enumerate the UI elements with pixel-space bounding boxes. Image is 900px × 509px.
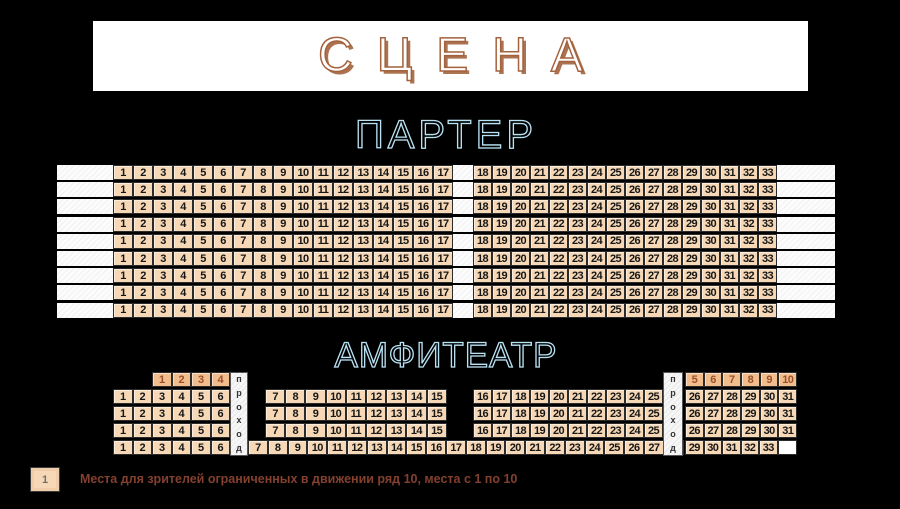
seat[interactable]: 20 (511, 251, 530, 266)
seat[interactable]: 3 (153, 251, 173, 266)
seat[interactable]: 30 (760, 406, 779, 421)
seat[interactable]: 26 (685, 389, 704, 404)
accessible-seat[interactable]: 3 (191, 372, 211, 387)
seat[interactable]: 3 (152, 406, 172, 421)
seat[interactable]: 24 (587, 251, 606, 266)
seat[interactable]: 7 (233, 234, 253, 249)
seat[interactable]: 26 (625, 234, 644, 249)
seat[interactable]: 31 (720, 234, 739, 249)
seat[interactable]: 4 (173, 165, 193, 180)
accessible-seat[interactable]: 1 (152, 372, 172, 387)
seat[interactable]: 24 (585, 440, 605, 455)
seat[interactable]: 5 (193, 285, 213, 300)
seat[interactable]: 17 (433, 285, 453, 300)
seat[interactable]: 22 (587, 406, 606, 421)
seat[interactable]: 15 (393, 268, 413, 283)
accessible-seat[interactable]: 6 (704, 372, 723, 387)
seat[interactable]: 4 (173, 182, 193, 197)
seat[interactable]: 24 (625, 389, 644, 404)
seat[interactable]: 30 (760, 389, 779, 404)
seat[interactable]: 18 (473, 251, 492, 266)
seat[interactable]: 13 (353, 234, 373, 249)
seat[interactable]: 9 (273, 165, 293, 180)
seat[interactable]: 32 (741, 440, 760, 455)
seat[interactable]: 26 (625, 303, 644, 318)
seat[interactable]: 32 (739, 234, 758, 249)
seat[interactable]: 26 (625, 268, 644, 283)
seat[interactable]: 1 (113, 423, 133, 438)
seat[interactable]: 1 (113, 268, 133, 283)
seat[interactable]: 17 (433, 303, 453, 318)
seat[interactable]: 6 (213, 234, 233, 249)
seat[interactable]: 5 (191, 389, 211, 404)
seat[interactable]: 10 (293, 182, 313, 197)
seat[interactable]: 20 (511, 217, 530, 232)
seat[interactable]: 10 (307, 440, 327, 455)
seat[interactable]: 15 (393, 217, 413, 232)
seat[interactable]: 14 (373, 165, 393, 180)
seat[interactable]: 25 (644, 423, 663, 438)
seat[interactable]: 22 (549, 234, 568, 249)
seat[interactable]: 13 (353, 182, 373, 197)
seat[interactable]: 33 (758, 182, 777, 197)
seat[interactable]: 2 (133, 285, 153, 300)
seat[interactable]: 7 (233, 285, 253, 300)
seat[interactable]: 30 (701, 285, 720, 300)
seat[interactable]: 19 (492, 199, 511, 214)
seat[interactable]: 18 (473, 234, 492, 249)
seat[interactable]: 10 (326, 423, 346, 438)
seat[interactable]: 25 (606, 182, 625, 197)
seat[interactable]: 22 (549, 165, 568, 180)
seat[interactable]: 8 (253, 199, 273, 214)
seat[interactable]: 31 (778, 406, 797, 421)
seat[interactable]: 8 (253, 251, 273, 266)
seat[interactable]: 18 (473, 268, 492, 283)
seat[interactable]: 16 (413, 303, 433, 318)
seat[interactable]: 20 (505, 440, 525, 455)
seat[interactable]: 33 (758, 234, 777, 249)
seat[interactable]: 16 (473, 423, 492, 438)
seat[interactable]: 13 (353, 251, 373, 266)
seat[interactable]: 23 (606, 389, 625, 404)
seat[interactable]: 20 (511, 182, 530, 197)
seat[interactable]: 7 (233, 199, 253, 214)
seat[interactable]: 33 (758, 285, 777, 300)
seat[interactable]: 26 (624, 440, 644, 455)
seat[interactable]: 9 (273, 217, 293, 232)
seat[interactable]: 3 (153, 285, 173, 300)
seat[interactable]: 27 (704, 406, 723, 421)
seat[interactable]: 18 (511, 406, 530, 421)
seat[interactable]: 29 (682, 234, 701, 249)
seat[interactable]: 22 (549, 217, 568, 232)
seat[interactable]: 18 (511, 389, 530, 404)
seat[interactable]: 29 (685, 440, 704, 455)
seat[interactable]: 25 (606, 285, 625, 300)
seat[interactable]: 1 (113, 234, 133, 249)
seat[interactable]: 12 (366, 423, 386, 438)
seat[interactable]: 27 (644, 268, 663, 283)
seat[interactable]: 27 (644, 165, 663, 180)
seat[interactable]: 24 (587, 268, 606, 283)
seat[interactable]: 16 (413, 234, 433, 249)
seat[interactable]: 27 (644, 440, 664, 455)
seat[interactable]: 17 (492, 423, 511, 438)
seat[interactable]: 9 (273, 285, 293, 300)
seat[interactable]: 2 (133, 440, 153, 455)
seat[interactable]: 31 (778, 423, 797, 438)
seat[interactable]: 20 (511, 268, 530, 283)
seat[interactable]: 20 (549, 406, 568, 421)
seat[interactable]: 7 (248, 440, 268, 455)
seat[interactable]: 30 (701, 268, 720, 283)
seat[interactable]: 9 (305, 406, 325, 421)
seat[interactable]: 31 (720, 217, 739, 232)
seat[interactable]: 14 (373, 199, 393, 214)
seat[interactable]: 22 (587, 389, 606, 404)
seat[interactable]: 28 (663, 217, 682, 232)
seat[interactable]: 2 (133, 268, 153, 283)
seat[interactable]: 5 (193, 165, 213, 180)
seat[interactable]: 7 (265, 406, 285, 421)
seat[interactable]: 18 (473, 217, 492, 232)
seat[interactable]: 3 (153, 234, 173, 249)
accessible-seat[interactable]: 10 (778, 372, 797, 387)
seat[interactable]: 27 (644, 199, 663, 214)
seat[interactable]: 20 (511, 285, 530, 300)
seat[interactable]: 1 (113, 182, 133, 197)
seat[interactable]: 9 (273, 303, 293, 318)
seat[interactable]: 3 (153, 268, 173, 283)
seat[interactable]: 9 (305, 389, 325, 404)
seat[interactable]: 9 (288, 440, 308, 455)
seat[interactable]: 26 (625, 217, 644, 232)
seat[interactable]: 21 (530, 285, 549, 300)
seat[interactable]: 1 (113, 165, 133, 180)
seat[interactable]: 10 (293, 285, 313, 300)
seat[interactable]: 24 (587, 217, 606, 232)
accessible-seat[interactable]: 7 (722, 372, 741, 387)
seat[interactable]: 13 (367, 440, 387, 455)
seat[interactable]: 21 (525, 440, 545, 455)
seat[interactable]: 12 (333, 165, 353, 180)
seat[interactable]: 23 (568, 285, 587, 300)
seat[interactable]: 7 (233, 182, 253, 197)
seat[interactable]: 5 (193, 251, 213, 266)
seat[interactable]: 32 (739, 217, 758, 232)
seat[interactable]: 31 (720, 268, 739, 283)
seat[interactable]: 27 (704, 423, 723, 438)
seat[interactable]: 6 (211, 406, 231, 421)
seat[interactable]: 16 (473, 389, 492, 404)
seat[interactable]: 28 (722, 389, 741, 404)
seat[interactable]: 6 (213, 217, 233, 232)
seat[interactable]: 24 (625, 423, 644, 438)
seat[interactable]: 15 (393, 251, 413, 266)
seat[interactable]: 9 (305, 423, 325, 438)
seat[interactable]: 19 (492, 217, 511, 232)
seat[interactable]: 32 (739, 303, 758, 318)
seat[interactable]: 22 (545, 440, 565, 455)
seat[interactable]: 2 (133, 182, 153, 197)
seat[interactable]: 13 (386, 389, 406, 404)
seat[interactable]: 5 (193, 234, 213, 249)
seat[interactable]: 27 (644, 234, 663, 249)
seat[interactable]: 5 (193, 182, 213, 197)
seat[interactable]: 28 (663, 285, 682, 300)
seat[interactable]: 11 (313, 182, 333, 197)
seat[interactable]: 2 (133, 251, 153, 266)
seat[interactable]: 24 (587, 285, 606, 300)
seat[interactable]: 12 (333, 199, 353, 214)
seat[interactable]: 3 (152, 423, 172, 438)
seat[interactable]: 25 (604, 440, 624, 455)
seat[interactable]: 21 (530, 217, 549, 232)
seat[interactable]: 11 (327, 440, 347, 455)
seat[interactable]: 25 (606, 165, 625, 180)
seat[interactable]: 27 (644, 285, 663, 300)
seat[interactable]: 12 (333, 251, 353, 266)
seat[interactable]: 28 (663, 165, 682, 180)
seat[interactable]: 4 (173, 285, 193, 300)
seat[interactable]: 23 (606, 423, 625, 438)
seat[interactable]: 1 (113, 406, 133, 421)
seat[interactable]: 11 (313, 234, 333, 249)
seat[interactable]: 25 (606, 217, 625, 232)
seat[interactable]: 14 (373, 285, 393, 300)
seat[interactable]: 4 (173, 234, 193, 249)
seat[interactable]: 31 (720, 165, 739, 180)
seat[interactable]: 23 (606, 406, 625, 421)
seat[interactable]: 13 (353, 199, 373, 214)
seat[interactable]: 8 (253, 234, 273, 249)
seat[interactable]: 2 (133, 423, 153, 438)
seat[interactable]: 2 (133, 234, 153, 249)
seat[interactable]: 21 (530, 199, 549, 214)
seat[interactable]: 30 (701, 303, 720, 318)
seat[interactable]: 8 (253, 182, 273, 197)
seat[interactable]: 4 (173, 199, 193, 214)
seat[interactable]: 15 (393, 234, 413, 249)
seat[interactable]: 28 (663, 234, 682, 249)
seat[interactable]: 10 (293, 268, 313, 283)
accessible-seat[interactable]: 9 (760, 372, 779, 387)
seat[interactable]: 6 (211, 423, 231, 438)
seat[interactable]: 20 (549, 423, 568, 438)
seat[interactable]: 14 (373, 303, 393, 318)
seat[interactable]: 1 (113, 217, 133, 232)
seat[interactable]: 5 (193, 303, 213, 318)
seat[interactable]: 11 (313, 217, 333, 232)
seat[interactable]: 10 (293, 234, 313, 249)
seat[interactable]: 1 (113, 303, 133, 318)
seat[interactable]: 4 (173, 251, 193, 266)
seat[interactable]: 2 (133, 303, 153, 318)
seat[interactable]: 12 (333, 303, 353, 318)
seat[interactable]: 13 (353, 268, 373, 283)
seat[interactable]: 25 (606, 199, 625, 214)
seat[interactable]: 31 (720, 199, 739, 214)
seat[interactable]: 29 (682, 217, 701, 232)
seat[interactable]: 19 (492, 268, 511, 283)
seat[interactable]: 29 (682, 285, 701, 300)
seat[interactable]: 9 (273, 199, 293, 214)
seat[interactable]: 19 (492, 251, 511, 266)
seat[interactable]: 6 (211, 389, 231, 404)
seat[interactable]: 11 (313, 285, 333, 300)
seat[interactable]: 33 (759, 440, 778, 455)
seat[interactable]: 31 (720, 285, 739, 300)
seat[interactable]: 29 (741, 389, 760, 404)
seat[interactable]: 13 (386, 406, 406, 421)
seat[interactable]: 20 (511, 234, 530, 249)
seat[interactable]: 28 (663, 251, 682, 266)
seat[interactable]: 18 (473, 182, 492, 197)
seat[interactable]: 29 (682, 268, 701, 283)
seat[interactable]: 8 (285, 389, 305, 404)
seat[interactable]: 22 (587, 423, 606, 438)
seat[interactable]: 15 (393, 182, 413, 197)
seat[interactable]: 5 (191, 423, 211, 438)
seat[interactable]: 8 (285, 423, 305, 438)
seat[interactable]: 30 (701, 199, 720, 214)
seat[interactable]: 26 (685, 423, 704, 438)
seat[interactable]: 26 (685, 406, 704, 421)
seat[interactable]: 2 (133, 165, 153, 180)
seat[interactable]: 3 (153, 182, 173, 197)
seat[interactable]: 11 (346, 389, 366, 404)
seat[interactable]: 11 (313, 165, 333, 180)
seat[interactable]: 28 (663, 303, 682, 318)
seat[interactable]: 23 (568, 199, 587, 214)
seat[interactable]: 24 (587, 303, 606, 318)
seat[interactable]: 29 (682, 182, 701, 197)
seat[interactable]: 3 (153, 199, 173, 214)
seat[interactable]: 28 (663, 268, 682, 283)
seat[interactable]: 32 (739, 199, 758, 214)
seat[interactable]: 30 (701, 165, 720, 180)
seat[interactable]: 3 (153, 303, 173, 318)
seat[interactable]: 19 (492, 303, 511, 318)
seat[interactable]: 16 (413, 251, 433, 266)
seat[interactable]: 1 (113, 440, 133, 455)
seat[interactable]: 1 (113, 285, 133, 300)
seat[interactable]: 17 (446, 440, 466, 455)
seat[interactable]: 23 (568, 268, 587, 283)
seat[interactable]: 29 (682, 251, 701, 266)
seat[interactable]: 12 (347, 440, 367, 455)
seat[interactable]: 16 (426, 440, 446, 455)
seat[interactable]: 27 (644, 303, 663, 318)
seat[interactable]: 19 (492, 165, 511, 180)
seat[interactable]: 6 (213, 268, 233, 283)
seat[interactable]: 31 (778, 389, 797, 404)
seat[interactable]: 4 (173, 217, 193, 232)
seat[interactable]: 22 (549, 303, 568, 318)
seat[interactable]: 17 (492, 389, 511, 404)
seat[interactable]: 30 (701, 217, 720, 232)
seat[interactable]: 18 (473, 199, 492, 214)
accessible-seat[interactable]: 4 (211, 372, 231, 387)
seat[interactable]: 10 (293, 217, 313, 232)
seat[interactable]: 8 (253, 268, 273, 283)
seat[interactable]: 9 (273, 182, 293, 197)
seat[interactable]: 10 (326, 406, 346, 421)
seat[interactable]: 7 (233, 217, 253, 232)
seat[interactable]: 12 (333, 268, 353, 283)
seat[interactable]: 27 (704, 389, 723, 404)
seat[interactable]: 10 (326, 389, 346, 404)
seat[interactable]: 24 (587, 165, 606, 180)
seat[interactable]: 27 (644, 217, 663, 232)
seat[interactable]: 15 (427, 389, 447, 404)
seat[interactable]: 26 (625, 182, 644, 197)
seat[interactable]: 18 (473, 165, 492, 180)
seat[interactable]: 7 (233, 165, 253, 180)
seat[interactable]: 9 (273, 234, 293, 249)
seat[interactable]: 33 (758, 217, 777, 232)
seat[interactable]: 3 (153, 217, 173, 232)
seat[interactable]: 6 (213, 285, 233, 300)
seat[interactable]: 21 (530, 182, 549, 197)
seat[interactable]: 26 (625, 165, 644, 180)
seat[interactable]: 4 (173, 303, 193, 318)
seat[interactable]: 14 (373, 268, 393, 283)
seat[interactable]: 6 (213, 182, 233, 197)
seat[interactable]: 2 (133, 389, 153, 404)
seat[interactable]: 28 (663, 199, 682, 214)
seat[interactable]: 24 (625, 406, 644, 421)
seat[interactable]: 21 (530, 251, 549, 266)
seat[interactable]: 23 (568, 217, 587, 232)
seat[interactable]: 32 (739, 285, 758, 300)
seat[interactable]: 10 (293, 199, 313, 214)
seat[interactable]: 32 (739, 251, 758, 266)
seat[interactable]: 15 (427, 406, 447, 421)
seat[interactable]: 21 (530, 234, 549, 249)
seat[interactable]: 30 (704, 440, 723, 455)
seat[interactable]: 27 (644, 182, 663, 197)
seat[interactable]: 19 (530, 423, 549, 438)
seat[interactable]: 4 (172, 423, 192, 438)
seat[interactable]: 8 (268, 440, 288, 455)
seat[interactable]: 8 (253, 165, 273, 180)
seat[interactable]: 23 (568, 182, 587, 197)
seat[interactable]: 6 (213, 251, 233, 266)
seat[interactable]: 7 (233, 303, 253, 318)
seat[interactable]: 27 (644, 251, 663, 266)
seat[interactable]: 19 (492, 285, 511, 300)
seat[interactable]: 14 (373, 182, 393, 197)
seat[interactable]: 17 (433, 165, 453, 180)
seat[interactable]: 30 (701, 251, 720, 266)
seat[interactable]: 6 (211, 440, 231, 455)
seat[interactable]: 4 (173, 268, 193, 283)
seat[interactable]: 14 (406, 389, 426, 404)
seat[interactable]: 31 (720, 303, 739, 318)
seat[interactable]: 6 (213, 165, 233, 180)
seat[interactable]: 25 (644, 389, 663, 404)
accessible-seat[interactable]: 2 (172, 372, 192, 387)
seat[interactable]: 8 (253, 303, 273, 318)
seat[interactable]: 8 (253, 285, 273, 300)
seat[interactable]: 16 (413, 285, 433, 300)
seat[interactable]: 1 (113, 251, 133, 266)
seat[interactable]: 18 (511, 423, 530, 438)
seat[interactable]: 18 (466, 440, 486, 455)
seat[interactable]: 19 (530, 406, 549, 421)
